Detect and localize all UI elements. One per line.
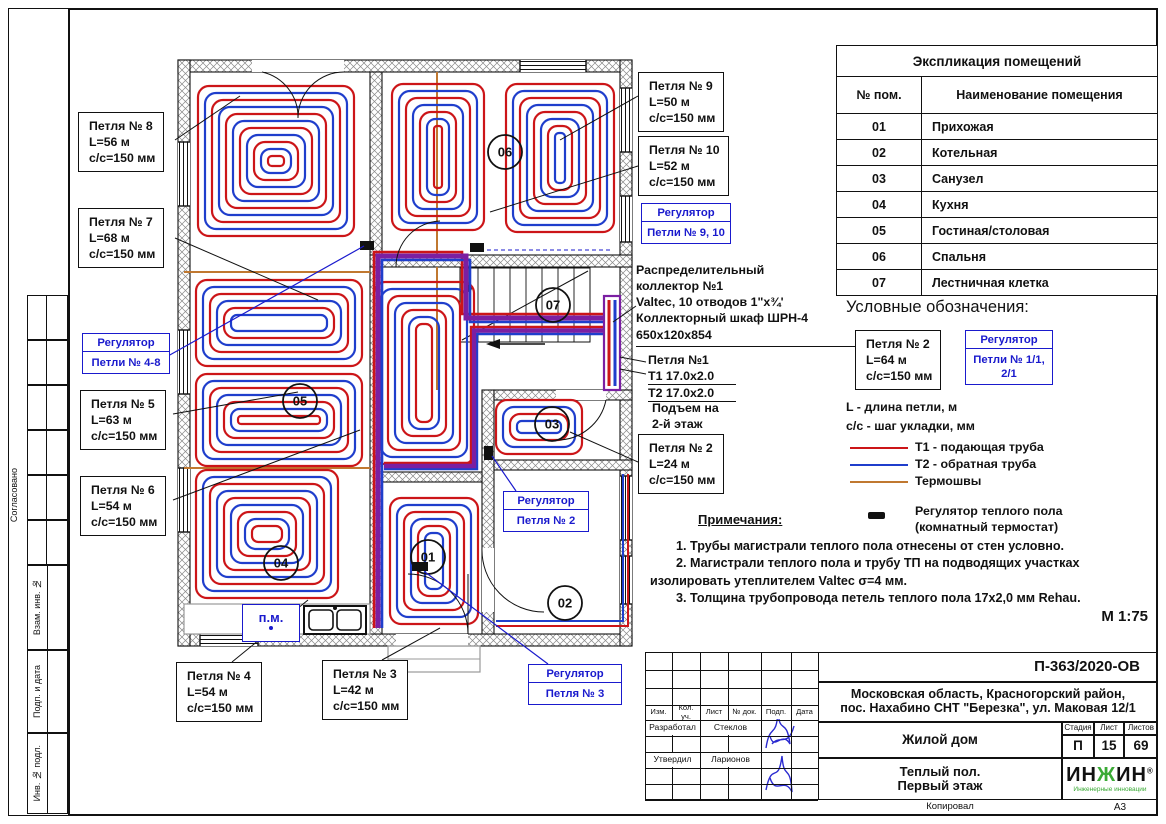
sidebar-label: Инв. № подл.: [28, 736, 46, 811]
drawing-sheet: 01020304050607 СогласованоВзам. инв. №По…: [0, 0, 1166, 824]
regulator-callout-loops: Петля № 2: [504, 510, 588, 531]
stamp-mini-number: 69: [1124, 735, 1158, 758]
loop-callout-line: L=54 м: [187, 684, 253, 700]
room-table-header: № пом. Наименование помещения: [837, 77, 1157, 114]
stamp-object: Жилой дом: [818, 722, 1062, 758]
note-item: 1. Трубы магистрали теплого пола отнесен…: [650, 538, 1102, 555]
legend-def-cc: с/с - шаг укладки, мм: [846, 419, 975, 433]
room-table-row: 04Кухня: [837, 192, 1157, 218]
loop-callout-line: L=56 м: [89, 134, 155, 150]
room-table-row: 06Спальня: [837, 244, 1157, 270]
room-number: 04: [837, 192, 922, 217]
dishwasher-dot: [269, 626, 273, 630]
room-number: 01: [837, 114, 922, 139]
loop-callout-line: L=54 м: [91, 498, 157, 514]
room-name: Санузел: [922, 166, 1157, 191]
note-item: 3. Толщина трубопровода петель теплого п…: [650, 590, 1102, 607]
loop-callout-7: Петля № 7L=68 мс/с=150 мм: [78, 208, 164, 268]
sidebar-grid-divider: [27, 385, 47, 430]
loop-callout-line: L=50 м: [649, 94, 715, 110]
loop-callout-6: Петля № 6L=54 мс/с=150 мм: [80, 476, 166, 536]
loop-callout-9: Петля № 9L=50 мс/с=150 мм: [638, 72, 724, 132]
stamp-developed-name: Стеклов: [701, 721, 760, 735]
sidebar-grid-divider: [27, 430, 47, 475]
stamp-grid-v: [791, 652, 792, 800]
logo-registered: ®: [1147, 766, 1154, 775]
regulator-callout-title: Регулятор: [642, 204, 730, 222]
loop-callout-line: L=52 м: [649, 158, 720, 174]
stamp-col-header: Лист: [701, 706, 727, 719]
regulator-callout-loops: Петли № 1/1,2/1: [966, 349, 1052, 384]
loop-callout-line: L=24 м: [649, 456, 715, 472]
loop-callout-line: L=63 м: [91, 412, 157, 428]
regulator-callout-title: Регулятор: [504, 492, 588, 510]
sidebar-text: Взам. инв. №: [32, 579, 42, 635]
regulator-callout-loops: Петли № 4-8: [83, 352, 169, 373]
loop-callout-line: с/с=150 мм: [89, 150, 155, 166]
regulator-callout-2: РегуляторПетля № 2: [503, 491, 589, 532]
scale-label: М 1:75: [1030, 608, 1148, 625]
loop-callout-line: Петля № 10: [649, 142, 720, 158]
sidebar-text: Согласовано: [9, 468, 19, 522]
loop-callout-line: L=42 м: [333, 682, 399, 698]
room-number: 03: [837, 166, 922, 191]
stamp-col-header: Дата: [792, 706, 817, 719]
dishwasher-label: п.м.: [243, 610, 299, 625]
room-number: 02: [837, 140, 922, 165]
loop-callout-line: Петля № 5: [91, 396, 157, 412]
stamp-mini-number: 15: [1094, 735, 1124, 758]
note-item: 2. Магистрали теплого пола и трубу ТП на…: [650, 555, 1102, 590]
legend-regulator-sample: РегуляторПетли № 1/1,2/1: [965, 330, 1053, 385]
loop-callout-line: L=68 м: [89, 230, 155, 246]
legend-loop-line: с/с=150 мм: [866, 368, 932, 384]
loop-callout-10: Петля № 10L=52 мс/с=150 мм: [638, 136, 729, 196]
room-name: Котельная: [922, 140, 1157, 165]
logo-subtext: Инженерные инновации: [1073, 786, 1146, 793]
sidebar-section-divider: [47, 650, 48, 733]
loop-callout-2: Петля № 2L=24 мс/с=150 мм: [638, 434, 724, 494]
loop-callout-line: Петля № 4: [187, 668, 253, 684]
legend-def-l: L - длина петли, м: [846, 400, 957, 414]
loop-callout-line: с/с=150 мм: [89, 246, 155, 262]
room-table-col1-header: № пом.: [837, 77, 922, 113]
stamp-approved-label: Утвердил: [646, 753, 699, 767]
stamp-address: Московская область, Красногорский район,…: [818, 682, 1158, 722]
stamp-mini-number: П: [1062, 735, 1094, 758]
logo-green-letter: Ж: [1097, 764, 1116, 786]
room-table-col2-header: Наименование помещения: [922, 77, 1157, 113]
stamp-format-label: А3: [1095, 801, 1145, 813]
legend-label: Т1 - подающая труба: [915, 440, 1044, 454]
notes-title: Примечания:: [698, 512, 782, 527]
room-table-body: 01Прихожая02Котельная03Санузел04Кухня05Г…: [837, 114, 1157, 295]
stamp-grid-h: [645, 736, 818, 737]
riser-note: Подъем на 2-й этаж: [652, 400, 719, 432]
room-table-row: 07Лестничная клетка: [837, 270, 1157, 295]
sidebar-grid-divider: [27, 475, 47, 520]
legend-label-regulator: Регулятор теплого пола (комнатный термос…: [915, 504, 1100, 535]
legend-loop-sample: Петля № 2L=64 мс/с=150 мм: [855, 330, 941, 390]
room-table-row: 02Котельная: [837, 140, 1157, 166]
company-logo: ИНЖИН®Инженерные инновации: [1062, 758, 1158, 800]
loop-callout-line: с/с=150 мм: [649, 472, 715, 488]
room-table-row: 03Санузел: [837, 166, 1157, 192]
loop-callout-line: с/с=150 мм: [649, 110, 715, 126]
sidebar-grid-divider: [27, 295, 47, 340]
stamp-grid-h: [645, 784, 818, 785]
regulator-callout-title: Регулятор: [966, 331, 1052, 349]
stamp-col-header: Изм.: [646, 706, 671, 719]
stamp-grid-h: [645, 800, 818, 801]
loop-callout-line: Петля № 6: [91, 482, 157, 498]
legend-line-sample: [850, 447, 908, 449]
stamp-grid-v: [761, 652, 762, 800]
stamp-col-header: № док.: [729, 706, 760, 719]
room-number: 07: [837, 270, 922, 295]
legend-line-sample: [850, 481, 908, 483]
regulator-callout-loops: Петли № 9, 10: [642, 222, 730, 243]
stamp-grid-h: [645, 670, 818, 671]
notes-list: 1. Трубы магистрали теплого пола отнесен…: [650, 538, 1102, 608]
stamp-developed-label: Разработал: [646, 721, 699, 735]
sidebar-text: Инв. № подл.: [32, 745, 42, 801]
loop1-note-line: Петля №1: [648, 352, 736, 368]
loop-callout-4: Петля № 4L=54 мс/с=150 мм: [176, 662, 262, 722]
legend-label: Термошвы: [915, 474, 981, 488]
loop-callout-line: Петля № 2: [649, 440, 715, 456]
stamp-col-header: Подп.: [762, 706, 790, 719]
room-name: Лестничная клетка: [922, 270, 1157, 295]
loop-callout-line: Петля № 3: [333, 666, 399, 682]
sidebar-label: Взам. инв. №: [28, 568, 46, 647]
loop-callout-5: Петля № 5L=63 мс/с=150 мм: [80, 390, 166, 450]
loop-callout-line: с/с=150 мм: [187, 700, 253, 716]
stamp-mini-label: Листов: [1124, 722, 1158, 735]
legend-thermostat-chip: [868, 512, 885, 519]
stamp-doc-number: П-363/2020-ОВ: [818, 652, 1150, 682]
loop-callout-line: Петля № 9: [649, 78, 715, 94]
stamp-col-header: Кол. уч.: [673, 706, 699, 719]
stamp-sheet-title: Теплый пол. Первый этаж: [818, 758, 1062, 800]
sidebar-section-divider: [47, 565, 48, 650]
stamp-approved-name: Ларионов: [701, 753, 760, 767]
room-name: Спальня: [922, 244, 1157, 269]
regulator-callout-title: Регулятор: [83, 334, 169, 352]
room-name: Прихожая: [922, 114, 1157, 139]
legend-loop-line: L=64 м: [866, 352, 932, 368]
loop-callout-line: Петля № 8: [89, 118, 155, 134]
sidebar-text: Подп. и дата: [32, 665, 42, 718]
room-table-row: 05Гостиная/столовая: [837, 218, 1157, 244]
room-exposition-table: Экспликация помещений № пом. Наименовани…: [836, 45, 1158, 296]
stamp-mini-label: Лист: [1094, 722, 1124, 735]
legend-label: Т2 - обратная труба: [915, 457, 1036, 471]
loop-callout-line: с/с=150 мм: [333, 698, 399, 714]
stamp-grid-h: [645, 652, 818, 653]
legend-loop-line: Петля № 2: [866, 336, 932, 352]
sidebar-section-divider: [47, 733, 48, 814]
loop1-note: Петля №1Т1 17.0х2.0Т2 17.0х2.0: [648, 352, 736, 402]
regulator-callout-9-10: РегуляторПетли № 9, 10: [641, 203, 731, 244]
loop-callout-8: Петля № 8L=56 мс/с=150 мм: [78, 112, 164, 172]
room-table-title: Экспликация помещений: [837, 46, 1157, 77]
logo-part: ИН: [1066, 764, 1097, 786]
sidebar-grid-divider: [27, 520, 47, 565]
stamp-mini-label: Стадия: [1062, 722, 1094, 735]
stamp-grid-h: [645, 688, 818, 689]
regulator-callout-title: Регулятор: [529, 665, 621, 683]
room-name: Гостиная/столовая: [922, 218, 1157, 243]
loop-callout-3: Петля № 3L=42 мс/с=150 мм: [322, 660, 408, 720]
logo-part: ИН: [1116, 764, 1147, 786]
regulator-callout-3: РегуляторПетля № 3: [528, 664, 622, 705]
regulator-callout-4-8: РегуляторПетли № 4-8: [82, 333, 170, 374]
room-table-row: 01Прихожая: [837, 114, 1157, 140]
loop-callout-line: Петля № 7: [89, 214, 155, 230]
stamp-copied-label: Копировал: [880, 801, 1020, 813]
sidebar-label-approved: Согласовано: [9, 468, 19, 572]
loop-callout-line: с/с=150 мм: [91, 428, 157, 444]
sidebar-grid-divider: [27, 340, 47, 385]
loop-callout-line: с/с=150 мм: [649, 174, 720, 190]
loop-callout-line: с/с=150 мм: [91, 514, 157, 530]
loop1-note-line: Т1 17.0х2.0: [648, 368, 736, 385]
regulator-callout-loops: Петля № 3: [529, 683, 621, 704]
room-name: Кухня: [922, 192, 1157, 217]
legend-line-sample: [850, 464, 908, 466]
room-number: 06: [837, 244, 922, 269]
dishwasher-label-box: п.м.: [242, 604, 300, 642]
room-number: 05: [837, 218, 922, 243]
sidebar-label: Подп. и дата: [28, 653, 46, 730]
stamp-grid-h: [645, 768, 818, 769]
logo-text: ИНЖИН®: [1066, 765, 1154, 785]
